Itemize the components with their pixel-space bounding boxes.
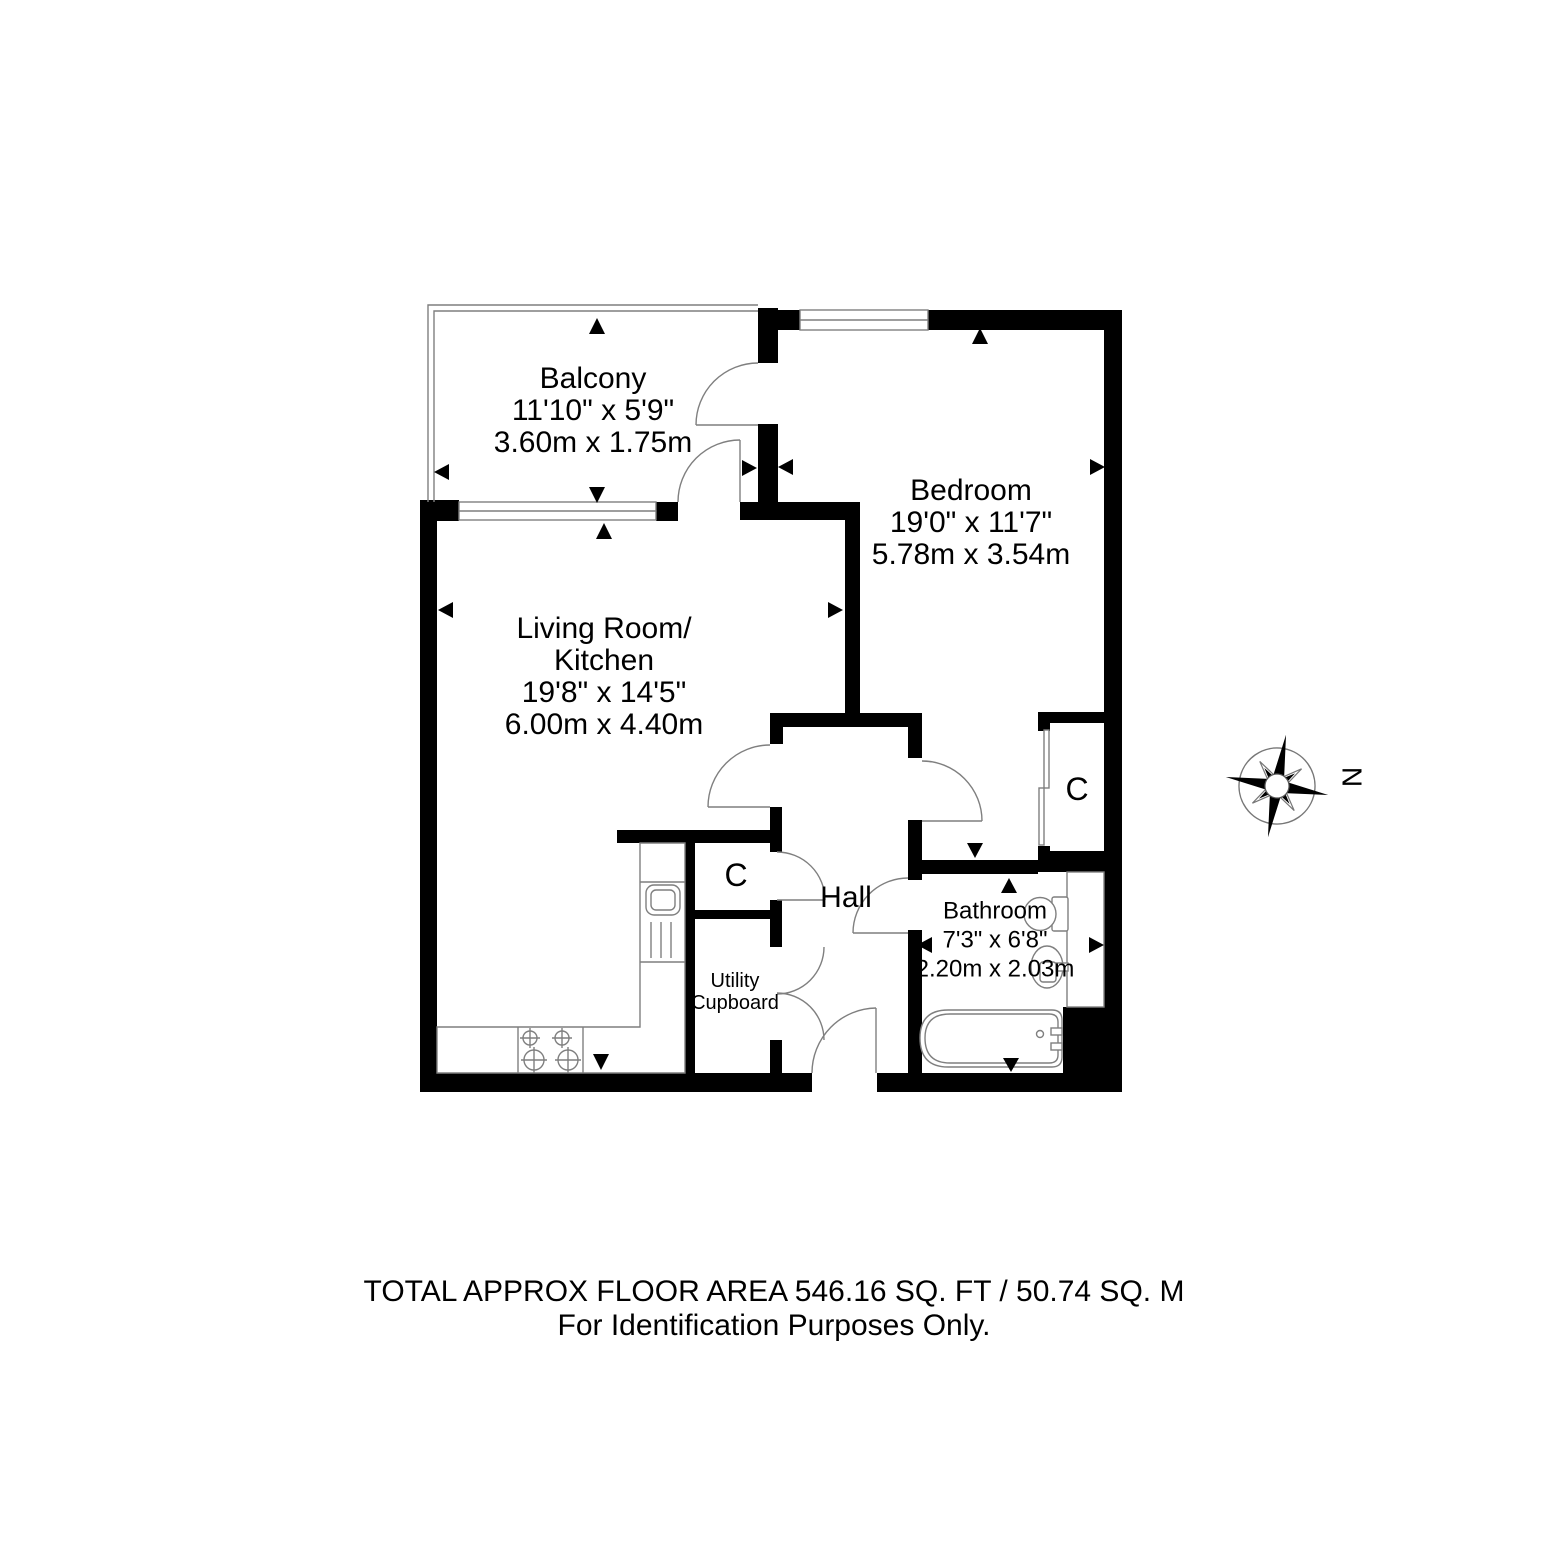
dim-arrow-up [1001, 878, 1017, 893]
hall-label: Hall [820, 882, 872, 914]
room-name: Living Room/ [505, 613, 703, 645]
dim-arrow-down [967, 843, 983, 858]
room-name: Balcony [494, 363, 692, 395]
bedroom-window [800, 310, 928, 330]
living-room-window [459, 502, 656, 520]
balcony-label: Balcony 11'10" x 5'9" 3.60m x 1.75m [494, 363, 692, 459]
dim-arrow-down [589, 487, 605, 503]
room-size-metric: 3.60m x 1.75m [494, 427, 692, 459]
utility-cupboard-label: Utility Cupboard [691, 970, 779, 1014]
kitchen-fixtures [437, 843, 685, 1073]
room-name: Cupboard [691, 992, 779, 1014]
room-size-imperial: 7'3" x 6'8" [916, 926, 1075, 955]
room-size-imperial: 19'0" x 11'7" [872, 507, 1070, 539]
room-name: Utility [691, 970, 779, 992]
compass-rose [1217, 726, 1337, 846]
bathroom-label: Bathroom 7'3" x 6'8" 2.20m x 2.03m [916, 897, 1075, 984]
dim-arrow-up [589, 318, 605, 334]
room-name: C [724, 859, 747, 891]
balcony-bedroom-door [696, 363, 758, 425]
room-size-metric: 2.20m x 2.03m [916, 955, 1075, 984]
dim-arrow-right [828, 602, 843, 618]
dim-arrow-up [972, 328, 988, 344]
room-size-imperial: 19'8" x 14'5" [505, 677, 703, 709]
bedroom-cupboard-doors [1039, 730, 1049, 845]
dim-arrow-left [434, 464, 449, 480]
entrance-door [812, 1008, 876, 1073]
living-room-kitchen-label: Living Room/ Kitchen 19'8" x 14'5" 6.00m… [505, 613, 703, 741]
dim-arrow-up [596, 523, 612, 539]
room-name: Bedroom [872, 475, 1070, 507]
hall-cupboard-label: C [724, 859, 747, 891]
room-name: Bathroom [916, 897, 1075, 926]
compass-north-label: N [1337, 767, 1368, 787]
room-name: C [1065, 773, 1088, 805]
disclaimer: For Identification Purposes Only. [364, 1309, 1185, 1343]
utility-cupboard-doors [777, 947, 824, 1040]
total-floor-area: TOTAL APPROX FLOOR AREA 546.16 SQ. FT / … [364, 1275, 1185, 1309]
room-name: Kitchen [505, 645, 703, 677]
room-size-metric: 5.78m x 3.54m [872, 539, 1070, 571]
room-size-imperial: 11'10" x 5'9" [494, 395, 692, 427]
bedroom-door [922, 761, 982, 821]
dim-arrow-right [742, 460, 757, 476]
room-size-metric: 6.00m x 4.40m [505, 709, 703, 741]
dim-arrow-left [438, 602, 453, 618]
footer-text: TOTAL APPROX FLOOR AREA 546.16 SQ. FT / … [364, 1275, 1185, 1343]
dim-arrow-right [1090, 459, 1105, 475]
dim-arrow-left [778, 459, 793, 475]
bedroom-cupboard-label: C [1065, 773, 1088, 805]
floor-plan: N Balcony 11'10" x 5'9" 3.60m x 1.75m Li… [0, 0, 1550, 1550]
bedroom-label: Bedroom 19'0" x 11'7" 5.78m x 3.54m [872, 475, 1070, 571]
room-name: Hall [820, 882, 872, 914]
living-hall-door [708, 745, 770, 807]
hall-cupboard-door [777, 852, 825, 900]
bathtub [920, 1010, 1062, 1067]
